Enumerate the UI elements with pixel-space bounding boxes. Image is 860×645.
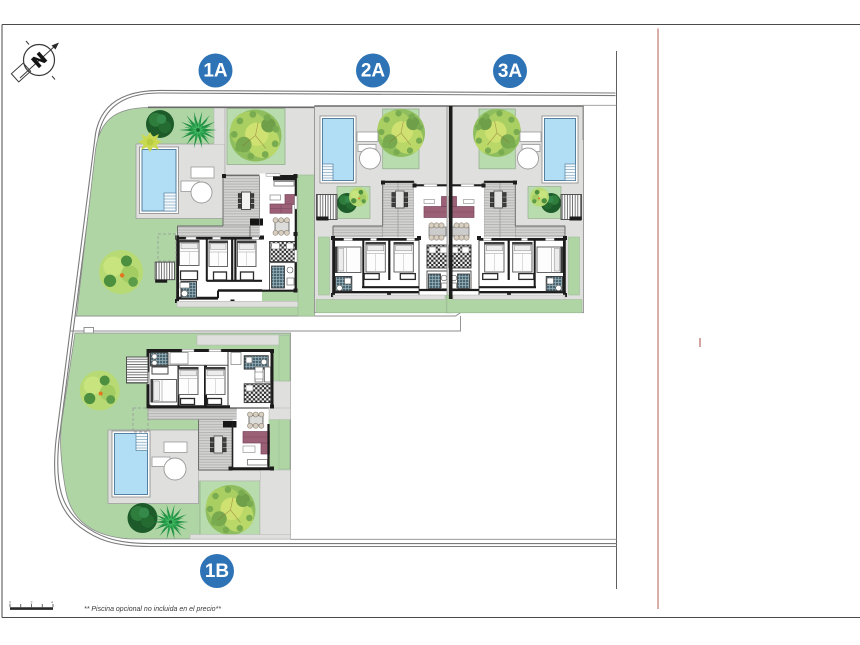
svg-text:3A: 3A [498, 61, 523, 82]
svg-text:1A: 1A [203, 61, 228, 82]
svg-text:** Piscina opcional no incluid: ** Piscina opcional no incluida en el pr… [84, 606, 221, 613]
svg-text:0: 0 [9, 601, 11, 605]
svg-text:4: 4 [51, 601, 53, 605]
svg-text:2: 2 [31, 601, 33, 605]
svg-text:1B: 1B [205, 561, 229, 582]
svg-text:2A: 2A [361, 61, 386, 82]
